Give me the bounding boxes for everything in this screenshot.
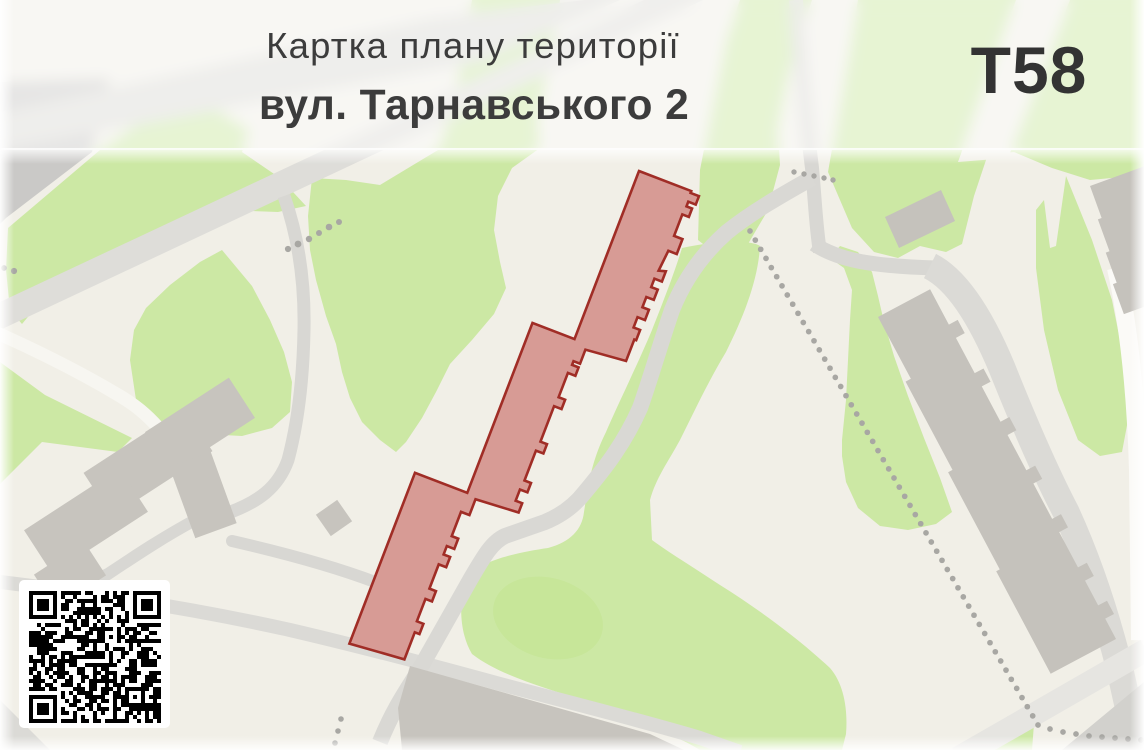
svg-text:Картка плану території: Картка плану території bbox=[266, 25, 680, 66]
svg-text:вул. Тарнавського 2: вул. Тарнавського 2 bbox=[259, 82, 689, 129]
svg-text:Т58: Т58 bbox=[971, 33, 1088, 107]
